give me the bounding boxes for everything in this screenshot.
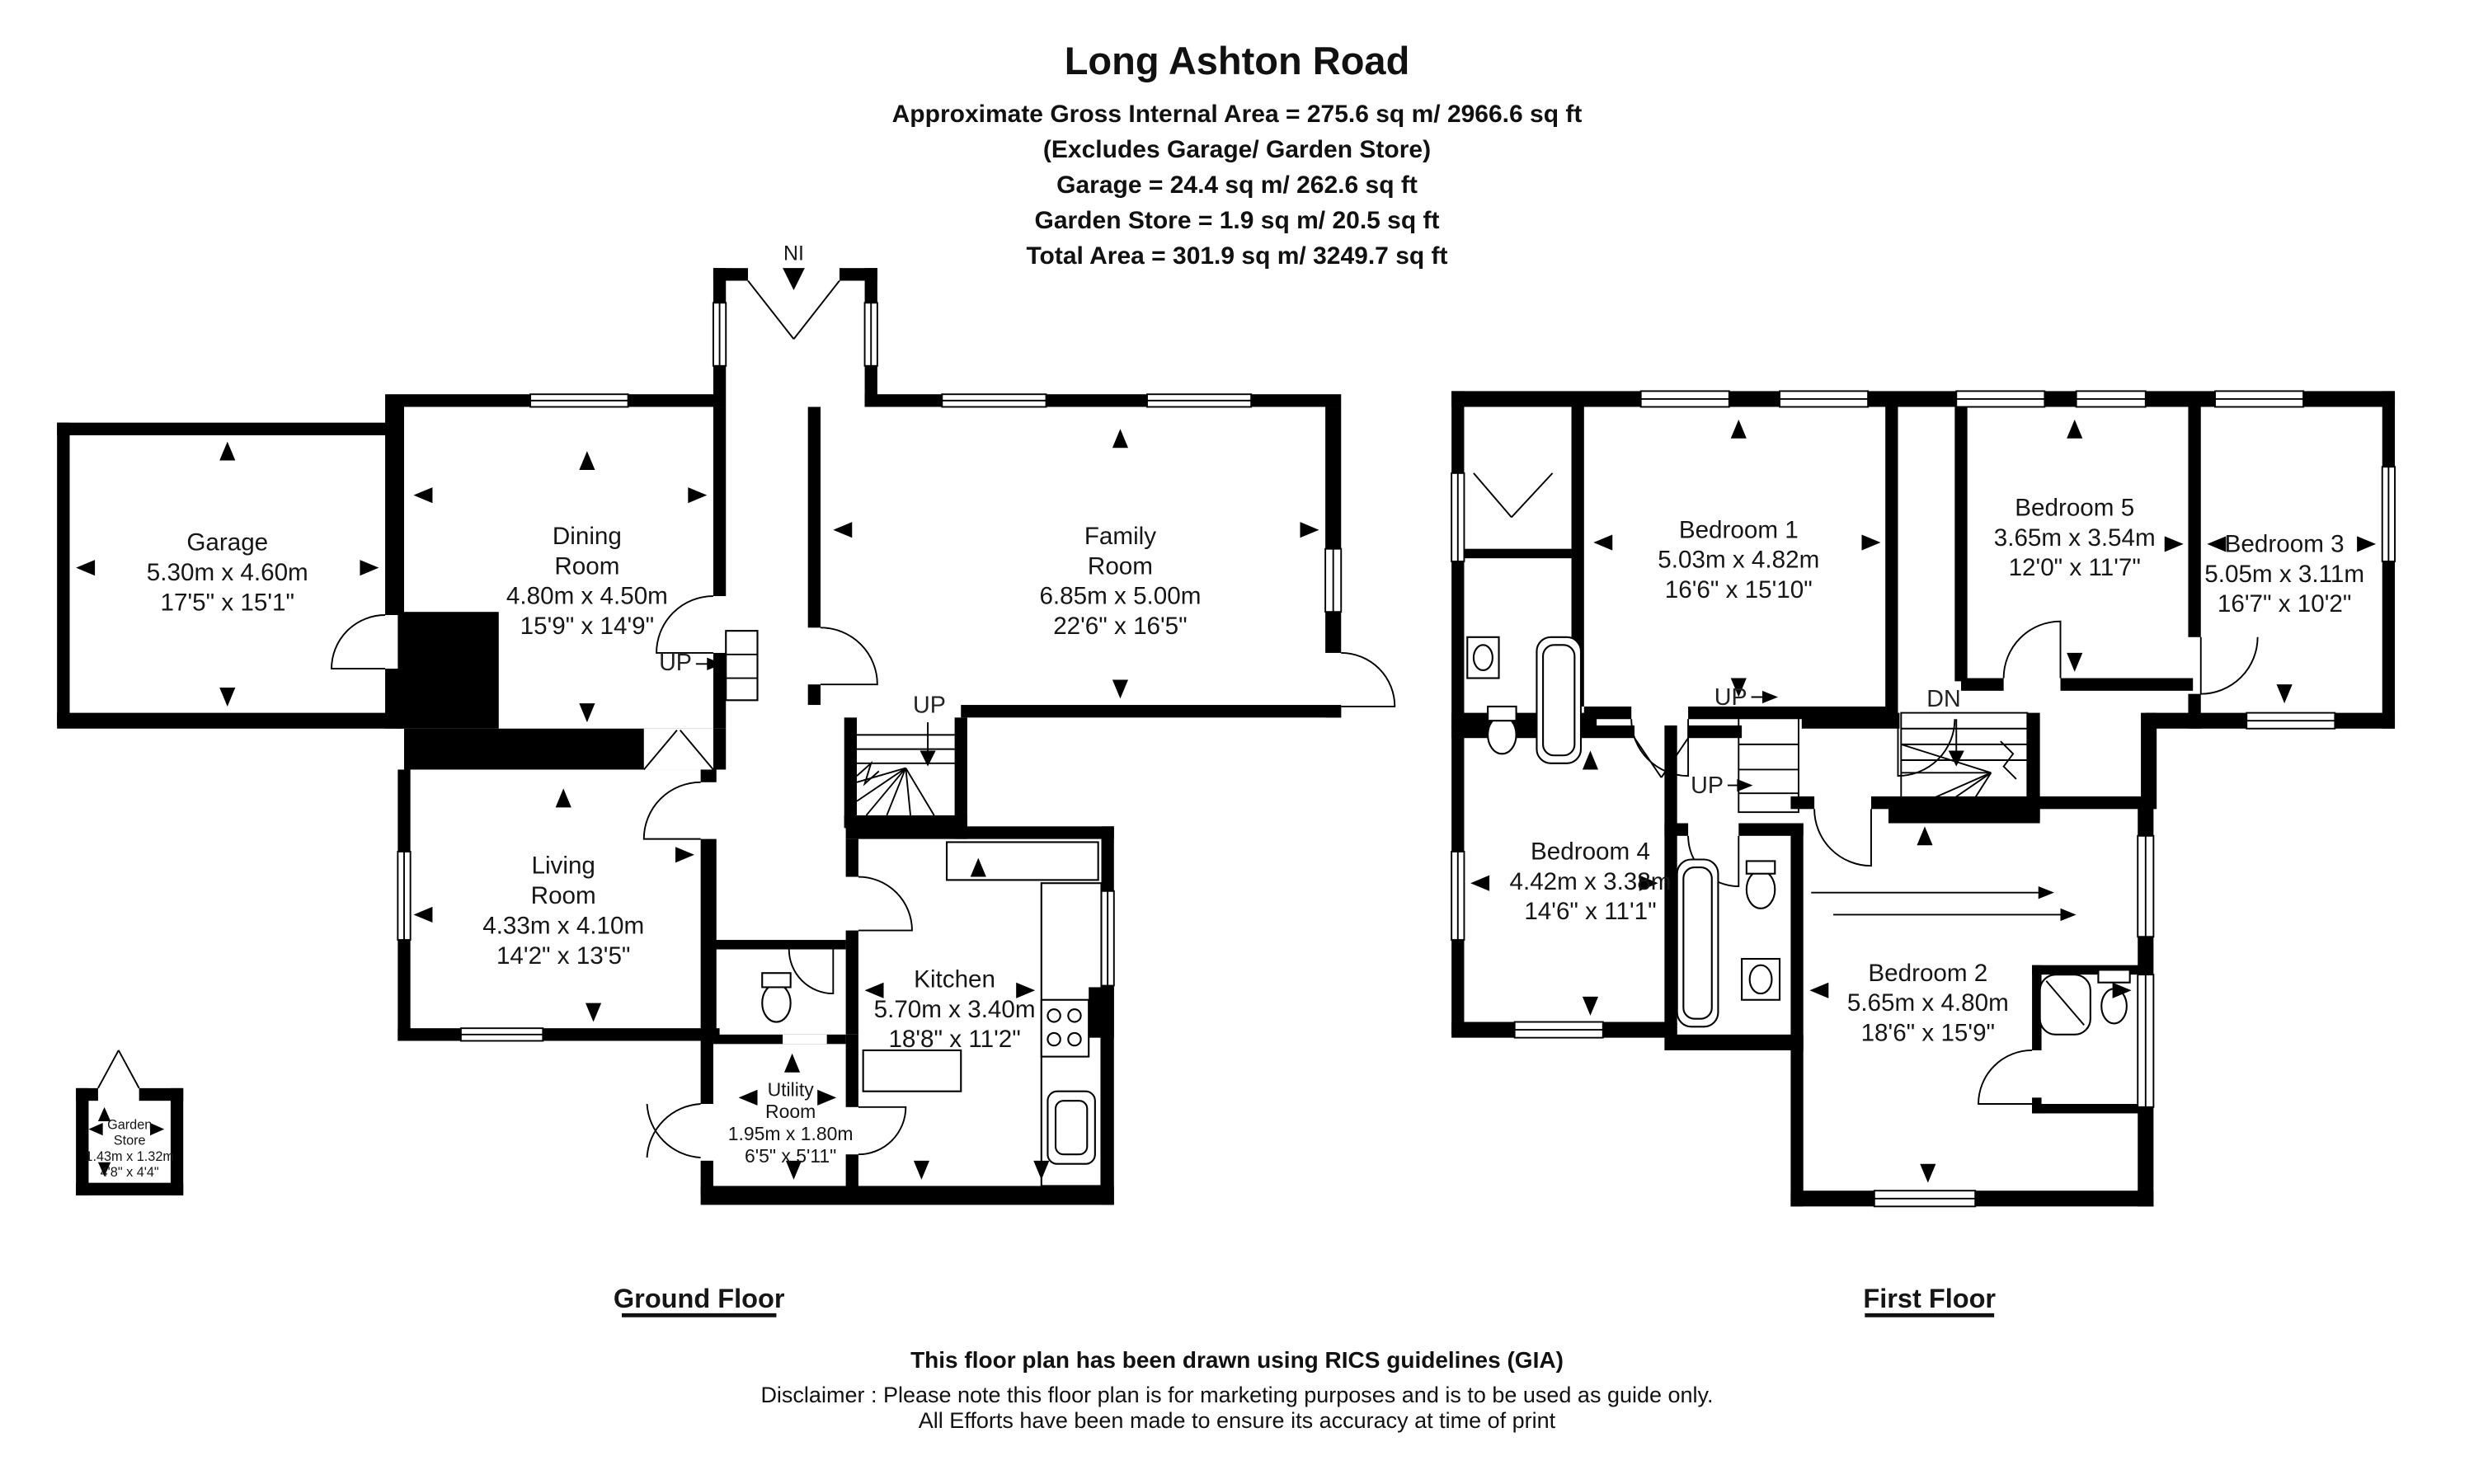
dn-label-stairs: DN (1926, 686, 1960, 712)
bedroom5-dim-ft: 12'0" x 11'7" (2009, 554, 2141, 581)
ground-floor-stairs (726, 631, 954, 815)
svg-text:Room: Room (765, 1101, 816, 1122)
living-dim-m: 4.33m x 4.10m (482, 912, 644, 939)
svg-text:Store: Store (114, 1134, 146, 1148)
family-dim-ft: 22'6" x 16'5" (1053, 613, 1187, 640)
first-floor-title: First Floor (1863, 1284, 1996, 1313)
bedroom2-dim-m: 5.65m x 4.80m (1847, 989, 2009, 1017)
svg-text:Room: Room (1088, 552, 1153, 580)
bedroom5-dim-m: 3.65m x 3.54m (1994, 524, 2156, 552)
family-label: Family (1084, 523, 1156, 550)
bedroom4-dim-m: 4.42m x 3.38m (1510, 868, 1672, 895)
ground-floor-title: Ground Floor (614, 1284, 785, 1313)
bedroom3-label: Bedroom 3 (2225, 531, 2345, 558)
kitchen-counter-icon (947, 842, 1098, 880)
floorplan-page: Long Ashton Road Approximate Gross Inter… (0, 0, 2474, 1484)
dining-dim-m: 4.80m x 4.50m (506, 583, 668, 610)
living-dim-ft: 14'2" x 13'5" (496, 942, 630, 970)
svg-text:Room: Room (554, 552, 619, 580)
entrance-arrow-icon (783, 268, 805, 290)
family-dim-m: 6.85m x 5.00m (1039, 583, 1201, 610)
bedroom4-label: Bedroom 4 (1531, 838, 1650, 866)
ground-floor-walls (57, 268, 1341, 1205)
garden-store-dim-ft: 4'8" x 4'4" (101, 1165, 159, 1180)
footer-notes: This floor plan has been drawn using RIC… (0, 1347, 2474, 1434)
up-label-landing-1: UP (1714, 684, 1747, 711)
bedroom1-label: Bedroom 1 (1679, 516, 1799, 543)
disclaimer-line-1: Disclaimer : Please note this floor plan… (0, 1383, 2474, 1408)
up-label-stairs: UP (913, 693, 946, 719)
toilet-icon (1747, 871, 1775, 909)
svg-text:Room: Room (531, 882, 596, 909)
rics-note: This floor plan has been drawn using RIC… (0, 1347, 2474, 1374)
floorplan-drawing: Garage 5.30m x 4.60m 17'5" x 15'1" Dinin… (0, 0, 2474, 1484)
bedroom4-dim-ft: 14'6" x 11'1" (1524, 898, 1656, 925)
kitchen-dim-m: 5.70m x 3.40m (874, 996, 1036, 1023)
kitchen-island-icon (863, 1050, 962, 1092)
garden-store-label: Garden (107, 1118, 152, 1133)
bedroom2-label: Bedroom 2 (1868, 960, 1987, 987)
garage-dim-ft: 17'5" x 15'1" (161, 589, 294, 616)
kitchen-dim-ft: 18'8" x 11'2" (888, 1026, 1020, 1053)
utility-label: Utility (768, 1078, 815, 1100)
wc-toilet-icon (762, 984, 790, 1022)
bedroom1-dim-ft: 16'6" x 15'10" (1665, 576, 1813, 603)
kitchen-label: Kitchen (914, 965, 995, 993)
bedroom3-dim-ft: 16'7" x 10'2" (2218, 590, 2351, 618)
up-label-hall: UP (659, 650, 692, 676)
hob-icon (1042, 1000, 1089, 1057)
entrance-label: NI (783, 242, 804, 265)
garage-dim-m: 5.30m x 4.60m (147, 559, 308, 586)
disclaimer-line-2: All Efforts have been made to ensure its… (0, 1408, 2474, 1434)
garden-store-dim-m: 1.43m x 1.32m (85, 1149, 173, 1164)
utility-dim-ft: 6'5" x 5'11" (745, 1145, 836, 1167)
first-floor-plan: Bedroom 1 5.03m x 4.82m 16'6" x 15'10" B… (1451, 391, 2395, 1315)
dining-label: Dining (553, 523, 622, 550)
first-floor-walls (1451, 391, 2395, 1206)
toilet-icon (1488, 716, 1516, 754)
garage-label: Garage (186, 529, 268, 556)
bedroom1-dim-m: 5.03m x 4.82m (1658, 547, 1819, 574)
bedroom5-label: Bedroom 5 (2015, 495, 2134, 522)
up-label-landing-2: UP (1691, 773, 1724, 799)
living-label: Living (532, 852, 595, 880)
ground-floor-plan: Garage 5.30m x 4.60m 17'5" x 15'1" Dinin… (57, 242, 1395, 1316)
bedroom2-dim-ft: 18'6" x 15'9" (1861, 1019, 1995, 1046)
utility-dim-m: 1.95m x 1.80m (728, 1123, 854, 1144)
dining-dim-ft: 15'9" x 14'9" (520, 613, 654, 640)
bedroom3-dim-m: 5.05m x 3.11m (2204, 561, 2364, 588)
